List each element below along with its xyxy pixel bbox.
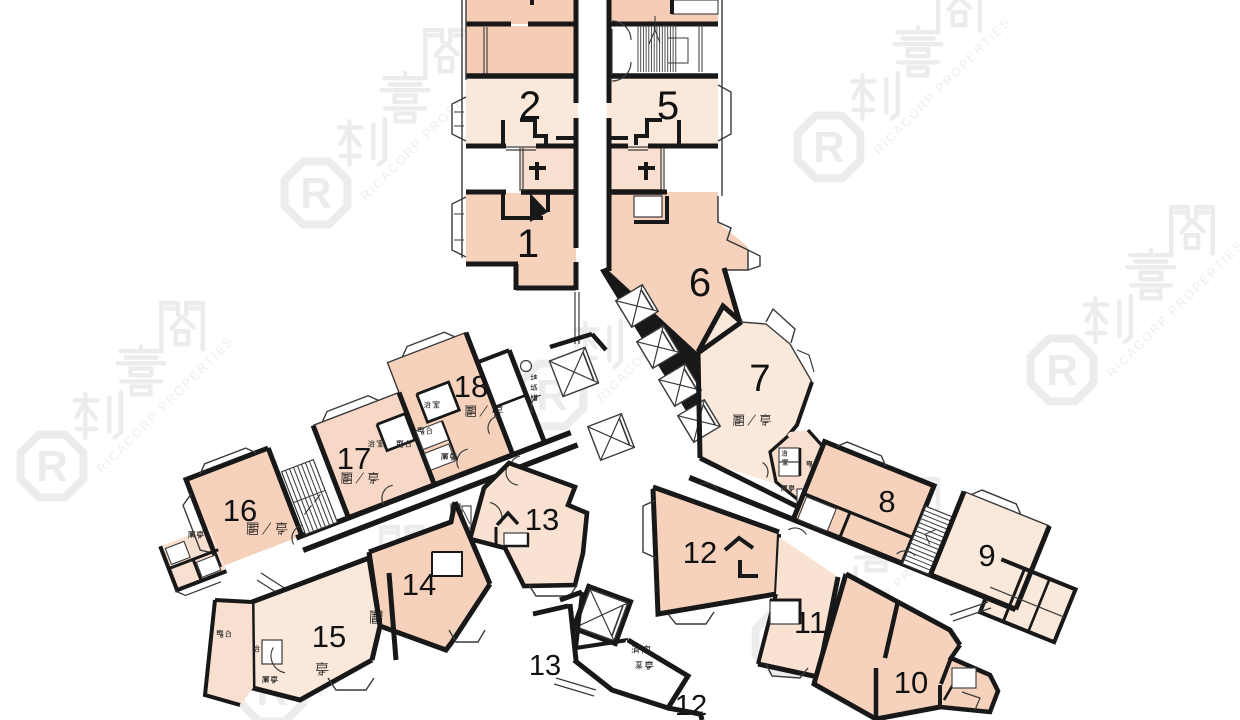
svg-text:1: 1	[517, 222, 539, 266]
svg-text:8: 8	[878, 484, 895, 519]
svg-text:R: R	[300, 169, 332, 218]
svg-text:7: 7	[749, 358, 770, 400]
svg-text:15: 15	[312, 619, 346, 654]
svg-text:18: 18	[454, 369, 488, 404]
svg-text:6: 6	[689, 261, 711, 305]
svg-text:13: 13	[529, 650, 561, 682]
svg-text:9: 9	[978, 538, 995, 573]
svg-text:13: 13	[525, 502, 559, 537]
svg-text:10: 10	[894, 665, 928, 700]
svg-text:R: R	[813, 123, 845, 172]
svg-text:R: R	[36, 442, 68, 491]
svg-text:2: 2	[519, 84, 541, 128]
svg-text:12: 12	[683, 535, 717, 570]
svg-text:5: 5	[657, 84, 679, 128]
svg-text:R: R	[1046, 346, 1078, 395]
svg-text:17: 17	[337, 441, 371, 476]
